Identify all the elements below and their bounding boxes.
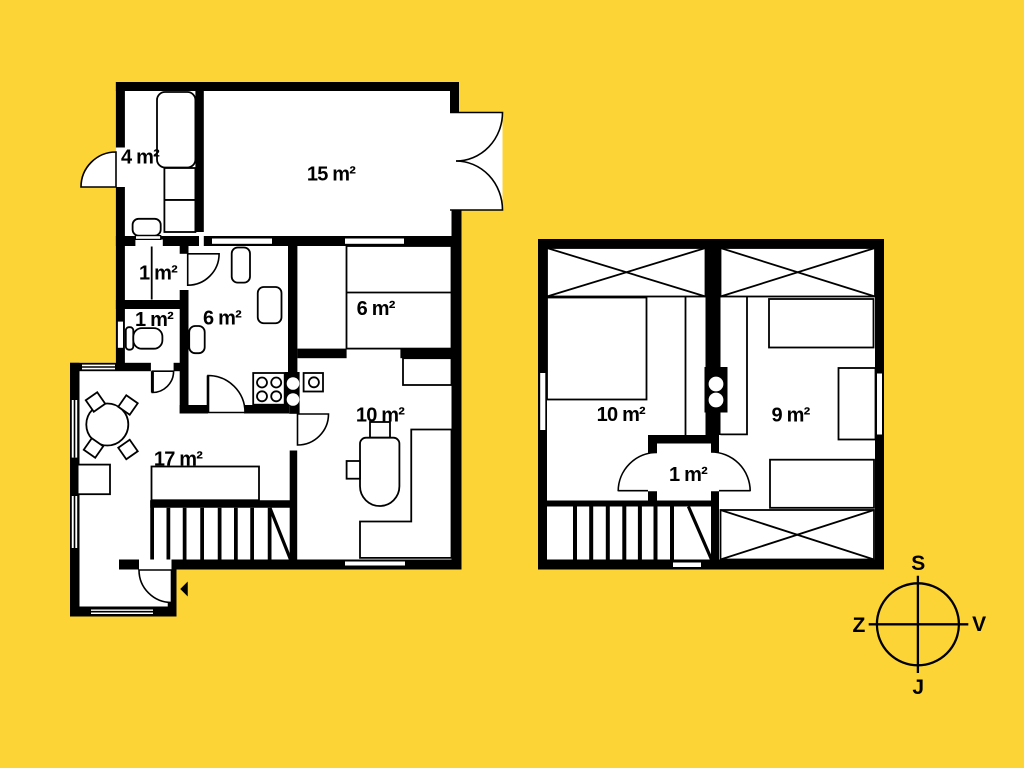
svg-text:10 m²: 10 m² — [356, 405, 405, 427]
svg-text:6 m²: 6 m² — [357, 298, 396, 320]
svg-text:V: V — [972, 613, 986, 636]
svg-text:1 m²: 1 m² — [669, 464, 708, 486]
svg-text:Z: Z — [853, 614, 866, 637]
svg-text:15 m²: 15 m² — [307, 164, 356, 186]
svg-text:9 m²: 9 m² — [772, 405, 811, 427]
svg-text:4 m²: 4 m² — [121, 147, 160, 169]
svg-text:6 m²: 6 m² — [203, 308, 242, 330]
svg-text:1 m²: 1 m² — [135, 309, 174, 331]
svg-text:17 m²: 17 m² — [154, 448, 203, 470]
svg-text:J: J — [912, 676, 923, 699]
svg-text:S: S — [911, 552, 925, 575]
svg-text:10 m²: 10 m² — [597, 404, 646, 426]
svg-text:1 m²: 1 m² — [139, 263, 178, 285]
